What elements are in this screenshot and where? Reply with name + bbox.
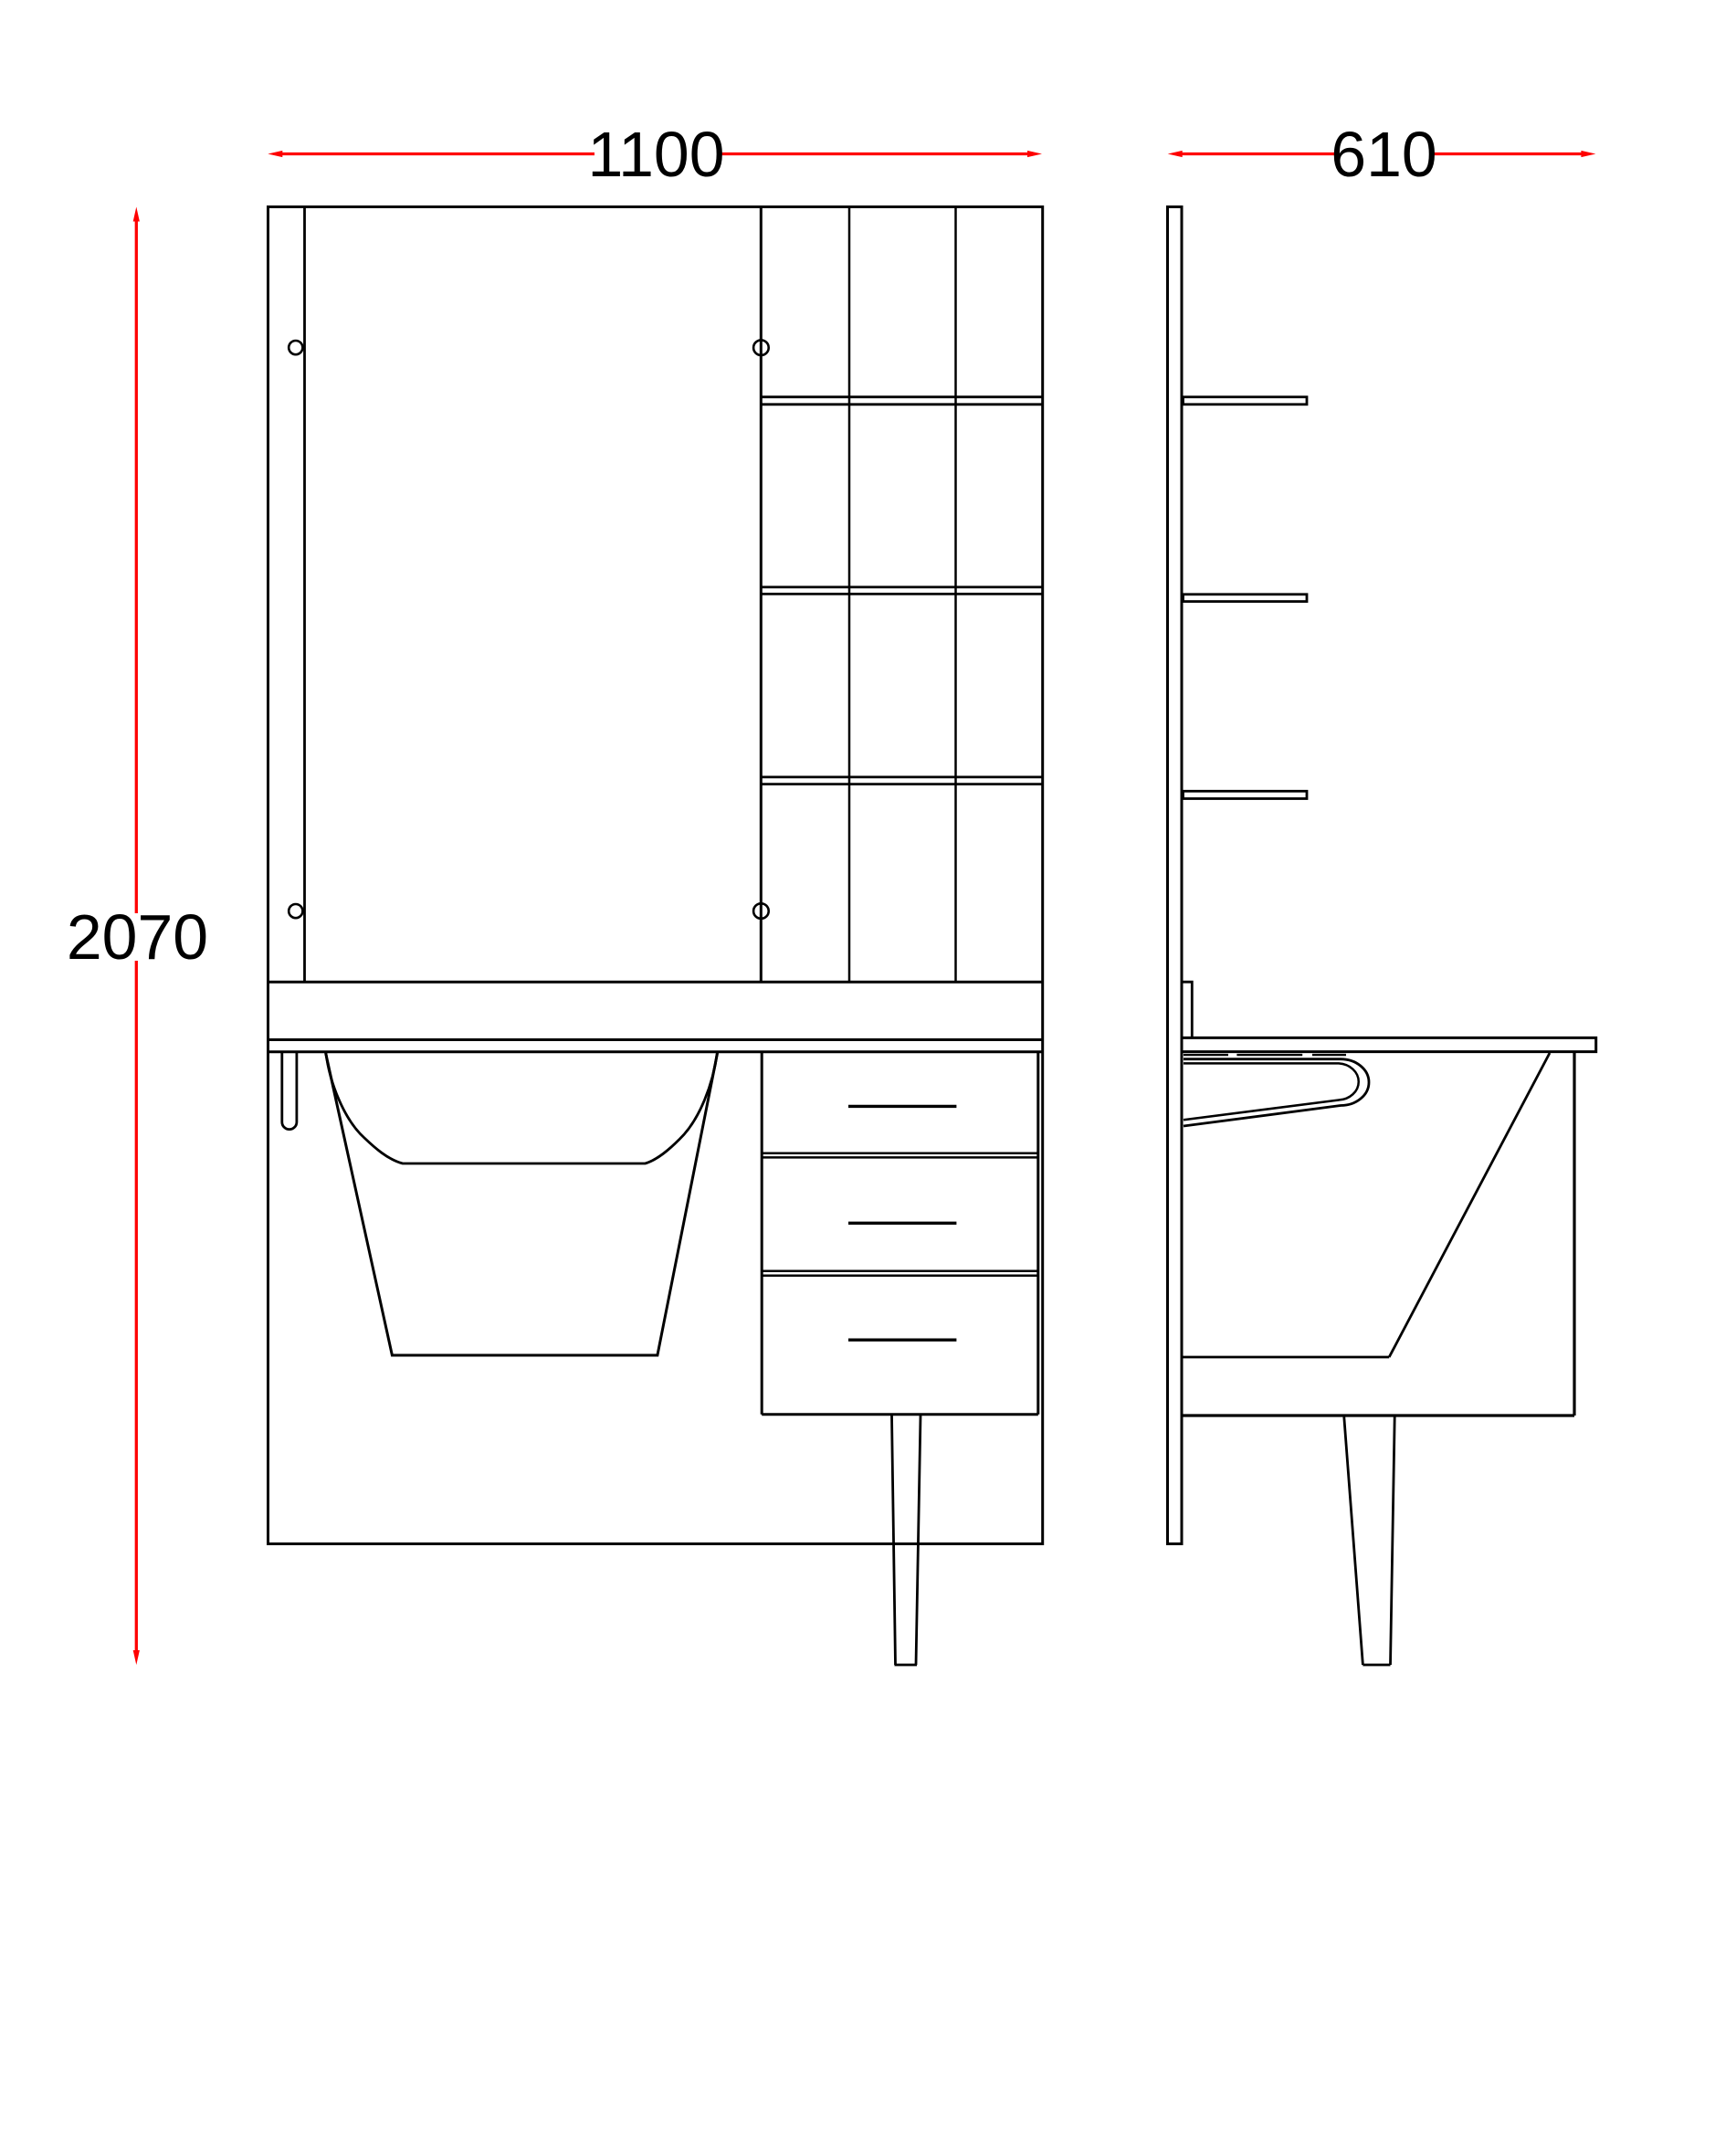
- svg-text:610: 610: [1331, 119, 1436, 190]
- svg-text:2070: 2070: [67, 901, 208, 973]
- svg-text:1100: 1100: [587, 119, 724, 190]
